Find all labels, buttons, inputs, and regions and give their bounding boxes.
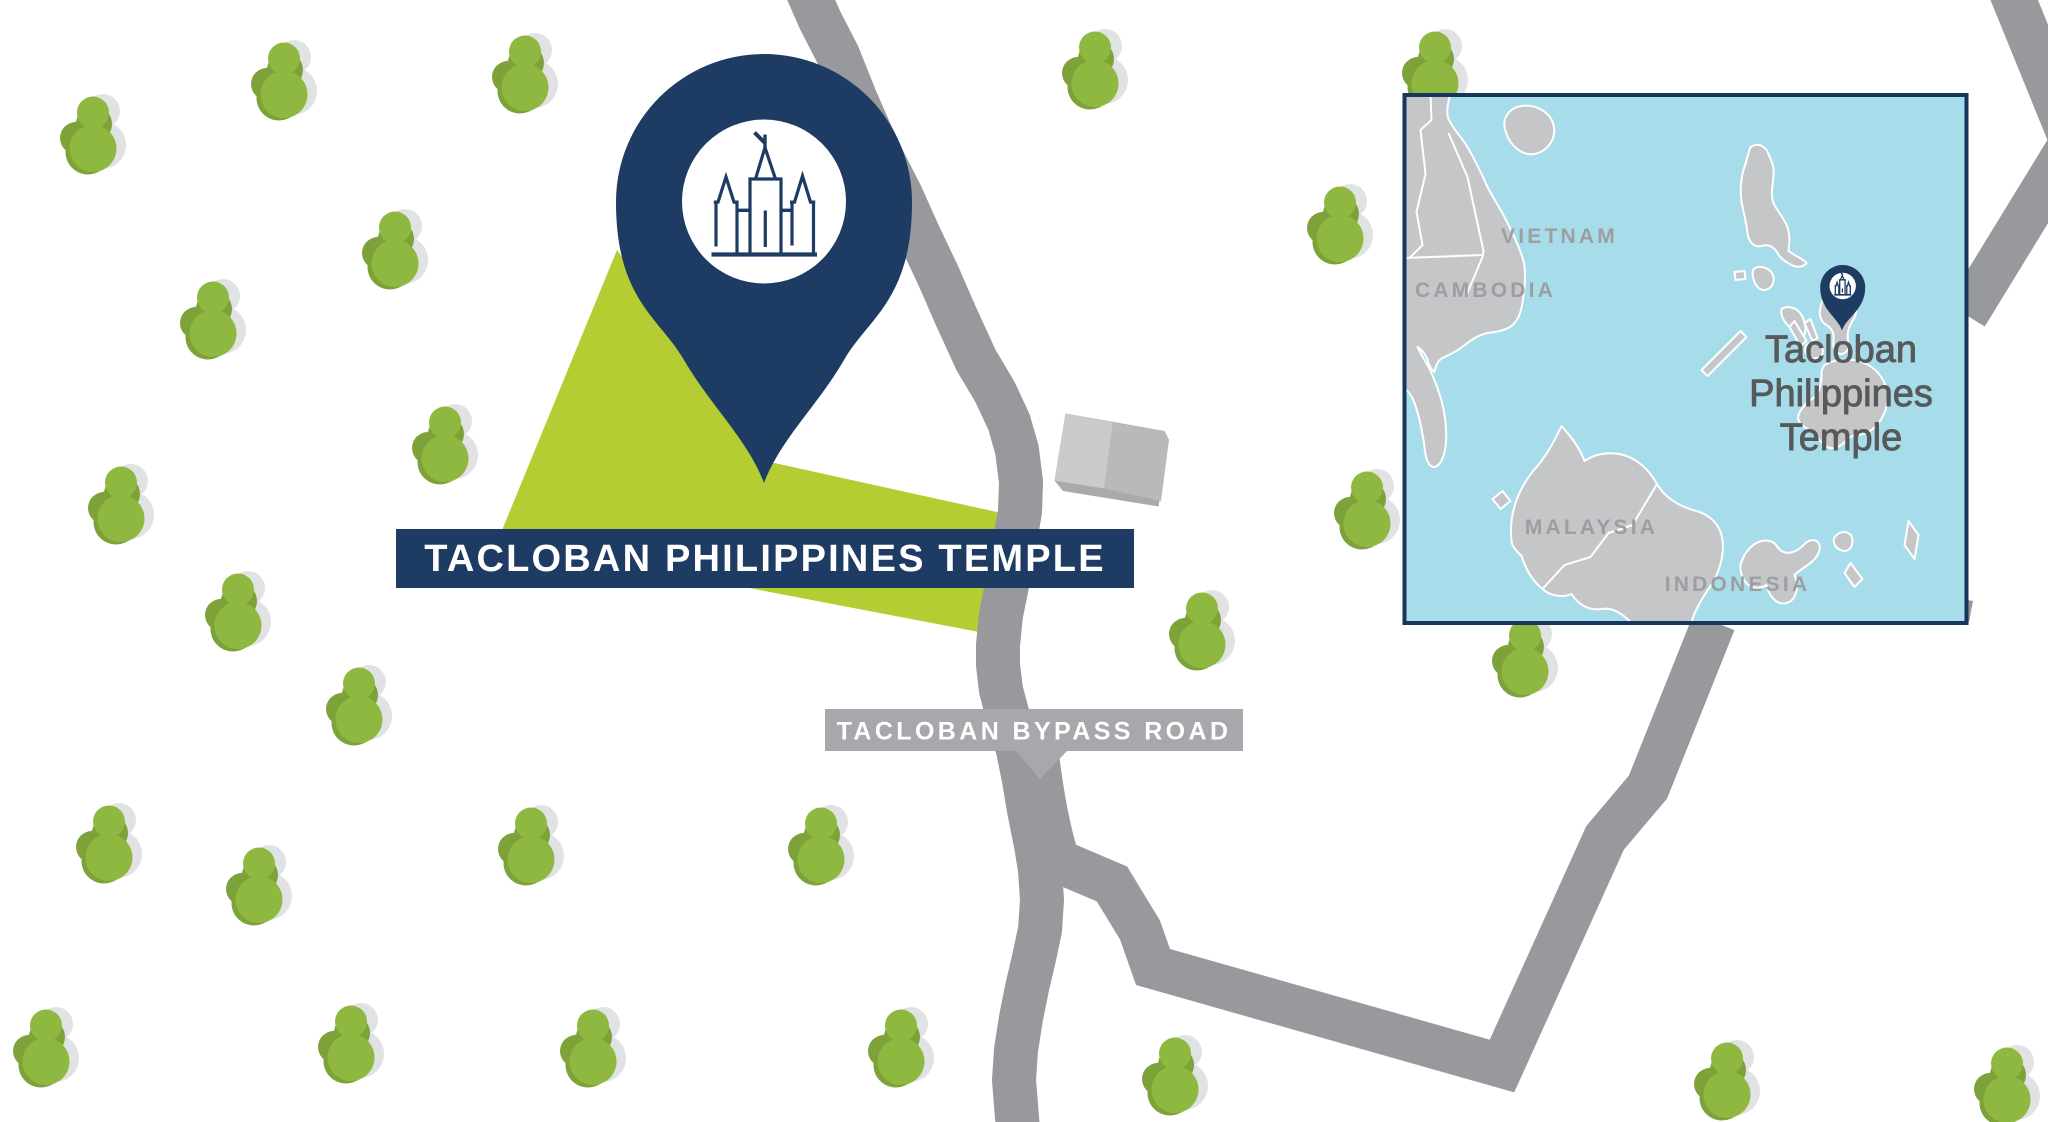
svg-text:Philippines: Philippines <box>1749 373 1933 415</box>
svg-text:VIETNAM: VIETNAM <box>1501 225 1618 248</box>
svg-text:TACLOBAN PHILIPPINES TEMPLE: TACLOBAN PHILIPPINES TEMPLE <box>424 538 1106 580</box>
svg-text:INDONESIA: INDONESIA <box>1665 573 1810 596</box>
svg-text:Temple: Temple <box>1780 417 1903 459</box>
svg-text:TACLOBAN BYPASS ROAD: TACLOBAN BYPASS ROAD <box>837 718 1232 746</box>
svg-text:Tacloban: Tacloban <box>1765 329 1917 371</box>
svg-text:CAMBODIA: CAMBODIA <box>1415 279 1556 302</box>
svg-text:MALAYSIA: MALAYSIA <box>1525 516 1658 539</box>
